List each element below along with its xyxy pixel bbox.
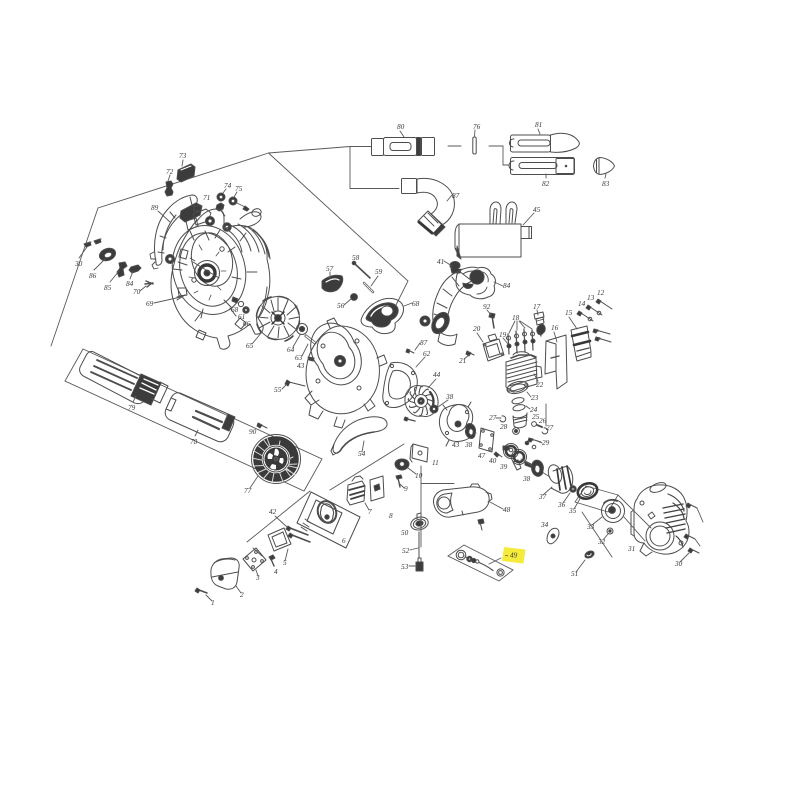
svg-text:59: 59: [375, 267, 383, 276]
svg-text:34: 34: [540, 520, 549, 529]
svg-text:78: 78: [190, 437, 198, 446]
svg-text:38: 38: [445, 392, 454, 401]
svg-text:1: 1: [211, 598, 215, 607]
svg-text:90: 90: [249, 427, 257, 436]
svg-text:9: 9: [404, 484, 408, 493]
svg-text:84: 84: [503, 281, 511, 290]
svg-text:65: 65: [246, 341, 254, 350]
svg-text:73: 73: [179, 151, 187, 160]
svg-text:38: 38: [522, 474, 531, 483]
svg-text:12: 12: [597, 288, 605, 297]
svg-text:7: 7: [368, 507, 372, 516]
svg-text:69: 69: [146, 299, 154, 308]
svg-text:79: 79: [128, 403, 136, 412]
svg-text:52: 52: [402, 546, 410, 555]
svg-text:74: 74: [224, 181, 232, 190]
svg-text:48: 48: [503, 505, 511, 514]
svg-text:40: 40: [489, 456, 497, 465]
svg-text:70: 70: [133, 287, 141, 296]
svg-text:18: 18: [512, 313, 520, 322]
svg-text:87: 87: [420, 338, 428, 347]
svg-text:30: 30: [74, 259, 83, 268]
svg-text:62: 62: [423, 349, 431, 358]
svg-text:6: 6: [342, 536, 346, 545]
svg-text:76: 76: [473, 122, 481, 131]
svg-text:13: 13: [587, 293, 595, 302]
svg-text:75: 75: [235, 184, 243, 193]
svg-text:86: 86: [89, 271, 97, 280]
svg-text:68: 68: [412, 299, 420, 308]
svg-text:49: 49: [510, 551, 518, 560]
svg-text:23: 23: [531, 393, 539, 402]
svg-text:56: 56: [337, 301, 345, 310]
svg-text:15: 15: [565, 308, 573, 317]
svg-text:54: 54: [358, 449, 366, 458]
svg-text:11: 11: [432, 458, 439, 467]
svg-text:50: 50: [401, 528, 409, 537]
svg-text:20: 20: [473, 324, 481, 333]
svg-text:66: 66: [243, 319, 251, 328]
svg-text:85: 85: [104, 283, 112, 292]
svg-text:10: 10: [415, 471, 423, 480]
svg-text:58: 58: [352, 253, 360, 262]
svg-text:16: 16: [551, 323, 559, 332]
svg-text:39: 39: [499, 462, 508, 471]
svg-text:8: 8: [389, 511, 393, 520]
svg-text:41: 41: [437, 257, 444, 266]
svg-text:43: 43: [297, 361, 305, 370]
svg-text:22: 22: [536, 380, 544, 389]
svg-text:38: 38: [464, 440, 473, 449]
svg-text:21: 21: [459, 356, 466, 365]
svg-text:47: 47: [478, 451, 486, 460]
svg-text:89: 89: [151, 203, 159, 212]
svg-text:27: 27: [489, 413, 497, 422]
svg-text:28: 28: [500, 422, 508, 431]
svg-text:87: 87: [452, 191, 460, 200]
svg-text:81: 81: [535, 120, 542, 129]
svg-text:4: 4: [274, 567, 278, 576]
svg-text:55: 55: [274, 385, 282, 394]
svg-text:31: 31: [627, 544, 635, 553]
svg-text:14: 14: [578, 299, 586, 308]
svg-text:83: 83: [602, 179, 610, 188]
svg-text:80: 80: [397, 122, 405, 131]
svg-text:27: 27: [546, 423, 554, 432]
svg-text:29: 29: [542, 438, 550, 447]
svg-text:42: 42: [269, 507, 277, 516]
svg-text:43: 43: [452, 440, 460, 449]
svg-text:82: 82: [542, 179, 550, 188]
svg-text:71: 71: [203, 193, 210, 202]
svg-text:44: 44: [433, 370, 441, 379]
svg-text:2: 2: [240, 590, 244, 599]
svg-text:53: 53: [401, 562, 409, 571]
